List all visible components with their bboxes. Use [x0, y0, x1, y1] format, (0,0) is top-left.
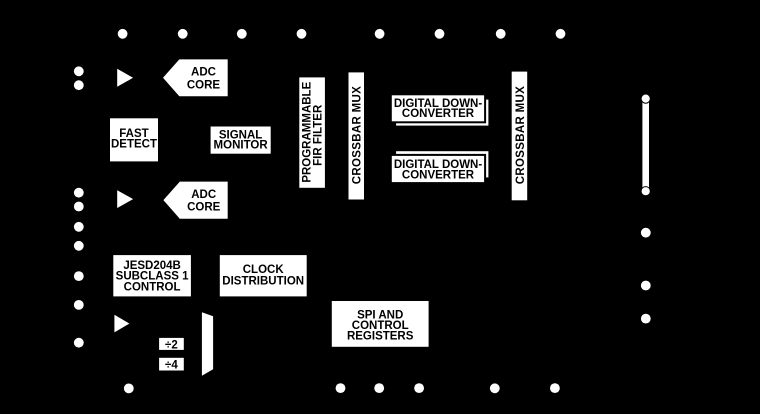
- svg-text:ADC: ADC: [191, 189, 216, 201]
- svg-text:CLOCK: CLOCK: [243, 264, 285, 276]
- svg-text:CONVERTER: CONVERTER: [402, 108, 475, 120]
- svg-text:CONTROL: CONTROL: [124, 282, 181, 294]
- svg-text:CORE: CORE: [187, 202, 221, 214]
- svg-text:FIR FILTER: FIR FILTER: [313, 104, 325, 166]
- svg-text:CONVERTER: CONVERTER: [402, 169, 475, 181]
- svg-text:÷4: ÷4: [165, 359, 178, 371]
- svg-text:CORE: CORE: [187, 79, 221, 91]
- svg-text:ADC: ADC: [191, 67, 216, 79]
- svg-text:CROSSBAR MUX: CROSSBAR MUX: [515, 86, 527, 184]
- svg-text:MONITOR: MONITOR: [214, 140, 269, 152]
- svg-text:÷2: ÷2: [165, 339, 178, 351]
- svg-text:CROSSBAR MUX: CROSSBAR MUX: [352, 86, 364, 184]
- svg-text:DISTRIBUTION: DISTRIBUTION: [222, 275, 304, 287]
- svg-text:DETECT: DETECT: [111, 139, 157, 151]
- svg-text:REGISTERS: REGISTERS: [347, 331, 414, 343]
